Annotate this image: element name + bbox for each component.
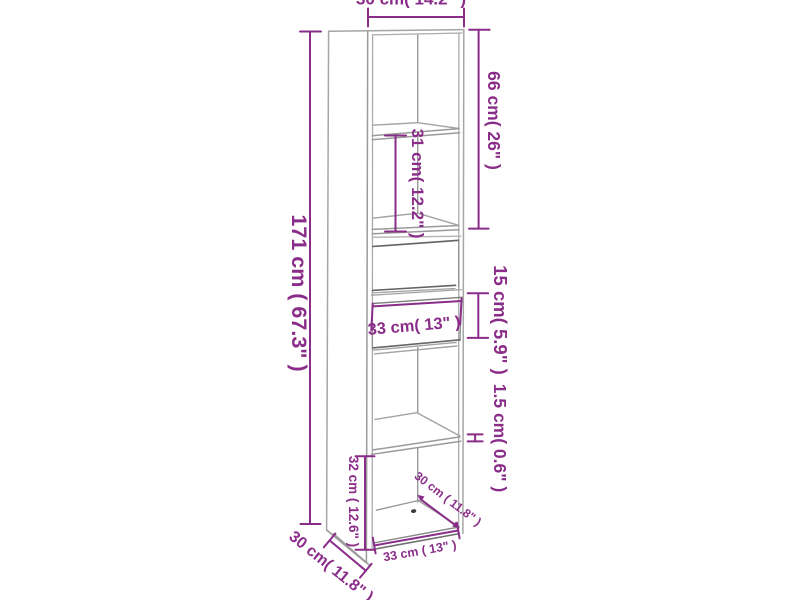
- svg-text:1.5 cm( 0.6" ): 1.5 cm( 0.6" ): [490, 384, 510, 493]
- svg-text:30 cm( 14.2" ): 30 cm( 14.2" ): [356, 0, 466, 9]
- svg-text:31 cm( 12.2" ): 31 cm( 12.2" ): [408, 128, 427, 238]
- svg-text:15 cm( 5.9" ): 15 cm( 5.9" ): [490, 265, 511, 375]
- svg-text:66 cm( 26" ): 66 cm( 26" ): [484, 71, 504, 170]
- svg-text:171 cm ( 67.3" ): 171 cm ( 67.3" ): [287, 214, 311, 371]
- svg-text:32 cm ( 12.6" ): 32 cm ( 12.6" ): [346, 456, 361, 547]
